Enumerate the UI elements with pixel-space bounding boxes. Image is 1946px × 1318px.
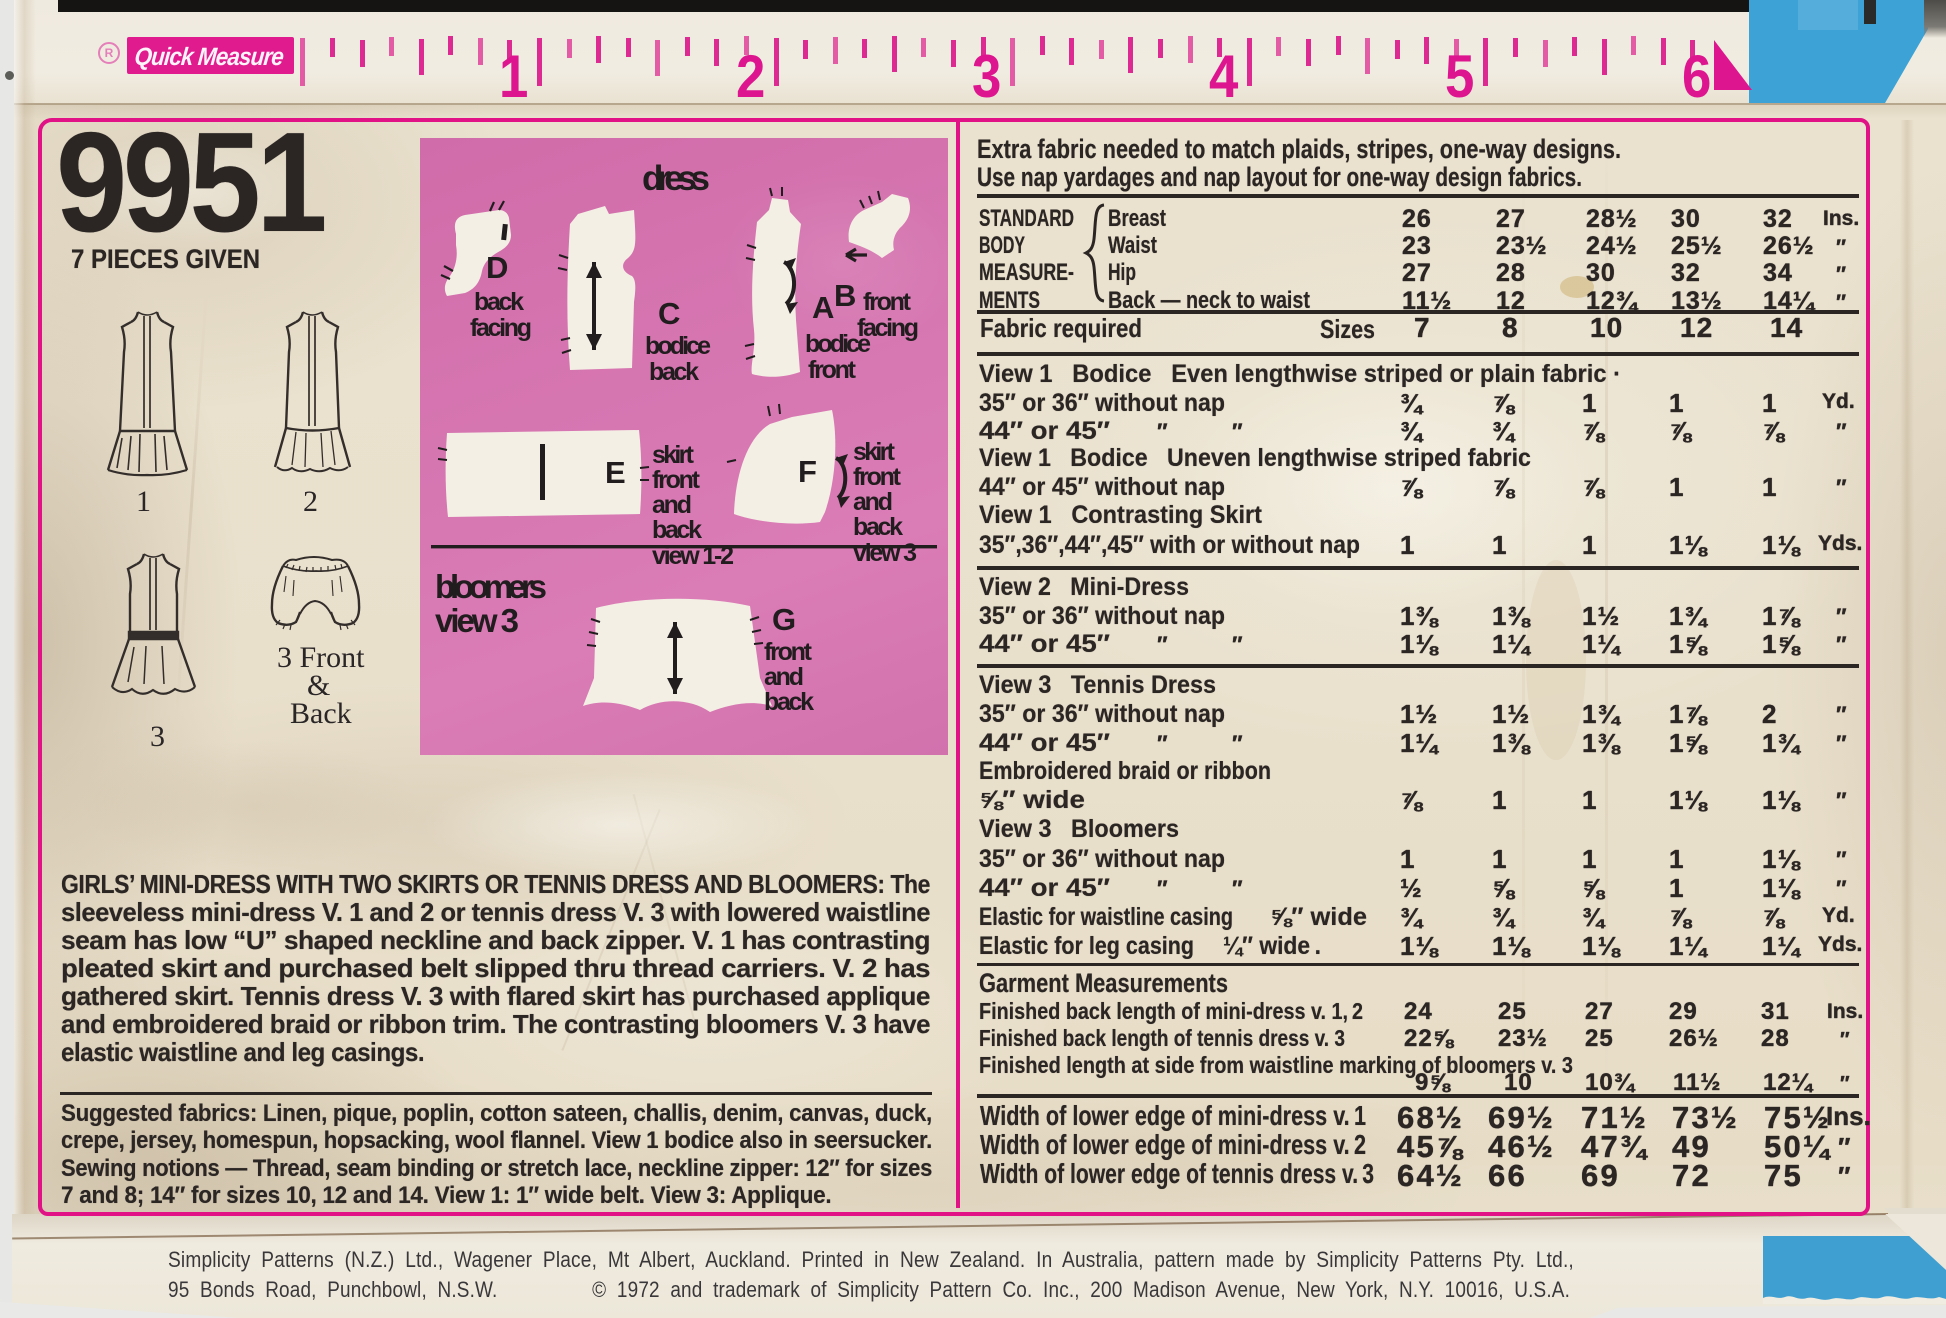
- svg-text:G: G: [772, 602, 796, 637]
- svg-text:view 3: view 3: [435, 602, 519, 639]
- svg-text:E: E: [605, 455, 626, 490]
- svg-text:front: front: [808, 356, 857, 384]
- svg-text:F: F: [798, 454, 817, 489]
- svg-text:front: front: [853, 463, 902, 491]
- svg-text:back: back: [474, 288, 524, 316]
- svg-text:front: front: [863, 288, 912, 316]
- svg-text:dress: dress: [642, 159, 710, 198]
- svg-text:skirt: skirt: [853, 438, 896, 466]
- svg-text:back: back: [649, 358, 699, 386]
- svg-text:bodice: bodice: [645, 332, 711, 360]
- svg-text:and: and: [764, 663, 804, 691]
- svg-text:and: and: [853, 488, 893, 516]
- svg-text:back: back: [652, 516, 702, 544]
- svg-text:skirt: skirt: [652, 441, 695, 469]
- svg-text:facing: facing: [470, 314, 532, 342]
- svg-text:front: front: [652, 466, 701, 494]
- svg-text:view 3: view 3: [853, 539, 917, 567]
- svg-text:back: back: [853, 513, 903, 541]
- svg-text:bloomers: bloomers: [435, 568, 547, 605]
- svg-text:and: and: [652, 491, 692, 519]
- svg-text:D: D: [486, 250, 508, 285]
- svg-text:front: front: [764, 638, 813, 666]
- svg-text:facing: facing: [857, 314, 919, 342]
- svg-text:back: back: [764, 688, 814, 716]
- svg-text:B: B: [834, 278, 856, 313]
- svg-text:A: A: [812, 290, 834, 325]
- svg-text:C: C: [658, 296, 680, 331]
